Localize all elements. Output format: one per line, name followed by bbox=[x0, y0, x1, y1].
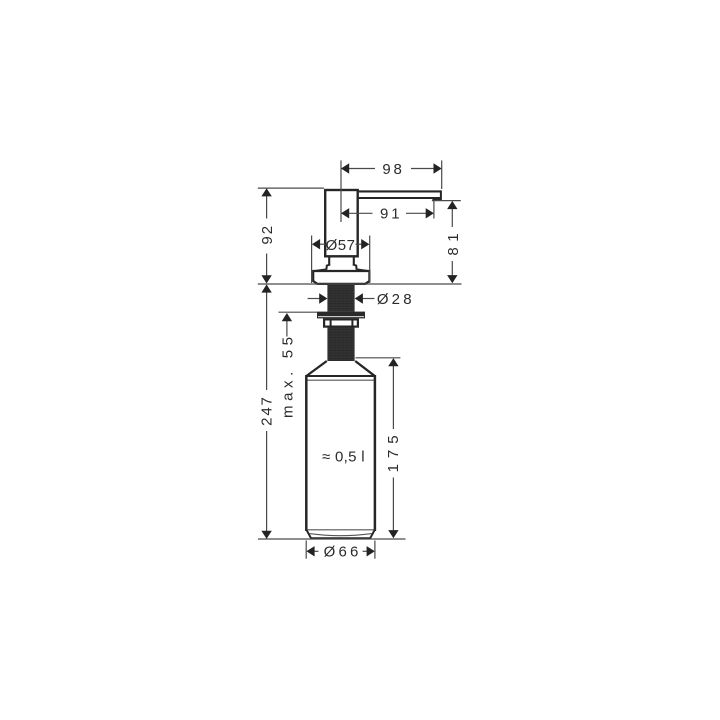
svg-text:98: 98 bbox=[382, 161, 404, 178]
svg-text:Ø57: Ø57 bbox=[326, 237, 356, 254]
svg-text:max. 55: max. 55 bbox=[280, 332, 297, 418]
svg-text:Ø66: Ø66 bbox=[324, 544, 362, 561]
svg-text:Ø28: Ø28 bbox=[377, 291, 415, 308]
svg-text:91: 91 bbox=[380, 206, 402, 223]
svg-text:247: 247 bbox=[259, 395, 276, 425]
svg-text:81: 81 bbox=[445, 228, 462, 256]
svg-text:175: 175 bbox=[385, 429, 402, 472]
svg-text:≈ 0,5 l: ≈ 0,5 l bbox=[322, 449, 365, 466]
svg-text:92: 92 bbox=[259, 224, 276, 245]
